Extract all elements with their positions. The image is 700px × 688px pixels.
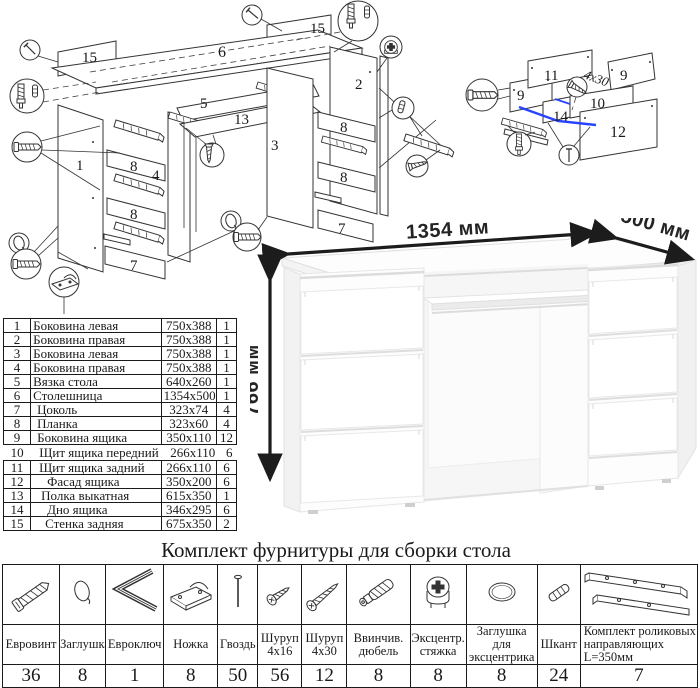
hardware-qty: 8 — [466, 665, 537, 688]
hardware-qty: 8 — [410, 665, 466, 688]
desk-product-photo: 1354 мм 500 мм 766 мм — [250, 218, 700, 540]
part-label-5: 5 — [200, 96, 208, 112]
table-row: 14Дно ящика346x2956 — [4, 503, 237, 517]
part-label-7: 7 — [130, 258, 138, 274]
table-row: 8Планка323x604 — [4, 417, 237, 431]
table-row: 5Вязка стола640x2601 — [4, 375, 237, 389]
drawer-front — [301, 286, 423, 354]
hardware-qty: 8 — [347, 665, 410, 688]
hardware-label: Шуруп 4х30 — [302, 625, 347, 665]
callout-foot — [49, 267, 79, 314]
hardware-qty: 7 — [580, 665, 697, 688]
nail-icon — [220, 565, 256, 619]
part-label-3: 3 — [271, 138, 279, 154]
hardware-qty: 56 — [258, 665, 302, 688]
table-row-borderless: 10 Щит ящика передний 266x110 6 — [3, 445, 239, 460]
part-label-9: 9 — [517, 88, 525, 104]
hardware-label: Комплект роликовых направляющих L=350мм — [580, 625, 697, 665]
svg-text:8: 8 — [340, 120, 348, 136]
side-panel-4 — [168, 112, 190, 262]
drawer-side-9b — [608, 53, 655, 90]
foot-icon — [166, 565, 216, 619]
table-row: 6Столешница1354x5001 — [4, 389, 237, 403]
hardware-icon-row — [3, 565, 698, 625]
callout-nail — [20, 40, 58, 62]
dowel-screw-icon — [349, 565, 407, 619]
drawer-slide-icon — [583, 565, 695, 619]
part-label-4: 4 — [152, 168, 160, 184]
height-dimension-label: 766 мм — [250, 344, 263, 416]
svg-text:9: 9 — [620, 68, 628, 84]
table-row: 7Цоколь323x744 — [4, 403, 237, 417]
svg-text:8: 8 — [340, 170, 348, 186]
hardware-label: Ввинчив. дюбель — [347, 625, 410, 665]
hardware-label: Шкант — [537, 625, 580, 665]
part-label-12: 12 — [610, 124, 626, 141]
svg-text:15: 15 — [310, 21, 325, 37]
part-label-6: 6 — [218, 44, 226, 61]
hardware-qty: 50 — [218, 665, 258, 688]
callout-cam — [377, 36, 402, 72]
callout-euroscrew-drawer — [466, 79, 510, 111]
hardware-label: Эксцентр. стяжка — [410, 625, 466, 665]
parts-table-lower: 11Щит ящика задний266x1106 12Фасад ящика… — [3, 460, 237, 531]
inner-side-panel — [540, 290, 588, 493]
part-label-15: 15 — [82, 50, 97, 66]
svg-text:8: 8 — [130, 207, 138, 223]
table-row: 3Боковина левая750x3881 — [4, 347, 237, 361]
hardware-label: Гвоздь — [218, 625, 258, 665]
table-row: 2Боковина правая750x3881 — [4, 333, 237, 347]
hardware-qty: 8 — [164, 665, 218, 688]
hardware-qty-row: 36 8 1 8 50 56 12 8 8 8 24 7 — [3, 665, 698, 688]
hardware-label: Евроключ — [106, 625, 164, 665]
part-label-1: 1 — [76, 158, 84, 174]
callout-screw-right — [406, 150, 440, 177]
wood-dowel-icon — [540, 565, 578, 619]
parts-list: 1Боковина левая750x3881 2Боковина правая… — [3, 318, 239, 531]
table-row: 9Боковина ящика350x11012 — [4, 431, 237, 445]
table-row: 4Боковина правая750x3881 — [4, 361, 237, 375]
parts-table-upper: 1Боковина левая750x3881 2Боковина правая… — [3, 318, 237, 445]
hardware-label: Евровинт — [3, 625, 60, 665]
hardware-qty: 24 — [537, 665, 580, 688]
hardware-label-row: Евровинт Заглушка Евроключ Ножка Гвоздь … — [3, 625, 698, 665]
drawer-front — [301, 430, 423, 503]
hardware-qty: 1 — [106, 665, 164, 688]
part-label-2: 2 — [355, 77, 363, 93]
part-label-14: 14 — [553, 109, 569, 125]
table-row: 15Стенка задняя675x3502 — [4, 517, 237, 531]
hardware-kit-title: Комплект фурнитуры для сборки стола — [0, 538, 672, 563]
hardware-label: Шуруп 4х16 — [258, 625, 302, 665]
table-row: 11Щит ящика задний266x1106 — [4, 461, 237, 475]
part-label-11: 11 — [544, 68, 558, 84]
hardware-label: Заглушка — [60, 625, 106, 665]
hardware-table: Евровинт Заглушка Евроключ Ножка Гвоздь … — [2, 564, 698, 688]
cam-lock-icon — [413, 565, 463, 619]
table-row: 12Фасад ящика350x2006 — [4, 475, 237, 489]
drawer-front — [589, 277, 677, 334]
drawer-front — [589, 398, 677, 456]
exploded-drawer-diagram: 9 11 9 10 14 12 4х30 — [440, 0, 700, 235]
side-panel-1 — [58, 105, 103, 272]
hardware-label: Ножка — [164, 625, 218, 665]
part-label-10: 10 — [590, 96, 605, 112]
drawer-front — [589, 334, 677, 398]
hardware-label: Заглушка для эксцентрика — [466, 625, 537, 665]
drawer-front — [301, 354, 423, 430]
table-row: 1Боковина левая750x3881 — [4, 319, 237, 333]
cam-cap-icon — [470, 565, 534, 619]
screw-short-icon — [260, 565, 300, 619]
hex-key-icon — [108, 565, 162, 619]
table-row: 13Полка выкатная615x3501 — [4, 489, 237, 503]
part-label-13: 13 — [234, 112, 249, 128]
hardware-qty: 36 — [3, 665, 60, 688]
cap-icon — [63, 565, 103, 619]
part-label-8: 8 — [130, 159, 138, 175]
hardware-qty: 12 — [302, 665, 347, 688]
hardware-qty: 8 — [60, 665, 106, 688]
screw-long-icon — [303, 565, 345, 619]
euroscrew-icon — [5, 565, 57, 619]
